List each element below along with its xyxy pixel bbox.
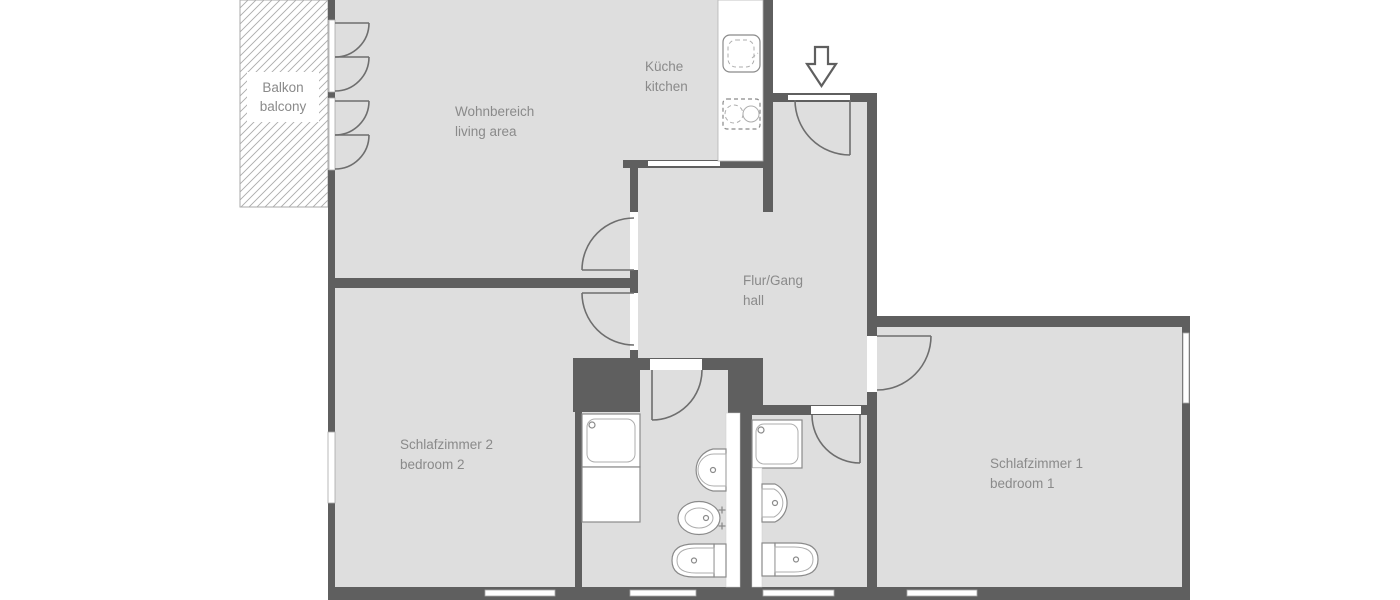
wall-bottom <box>328 587 1190 600</box>
hall-floor-top <box>773 100 867 168</box>
room-label-living: Wohnbereich living area <box>455 102 534 142</box>
room-name-en: kitchen <box>645 77 688 97</box>
balcony-door-opening-1 <box>329 20 335 92</box>
floor-plan: Balkon balcony Wohnbereich living area K… <box>0 0 1400 600</box>
room-name-de: Wohnbereich <box>455 102 534 122</box>
shower-icon <box>752 420 802 468</box>
wall-living-bedroom2 <box>328 278 638 288</box>
bedroom1-window-right <box>1183 333 1189 403</box>
room-name-de: Flur/Gang <box>743 271 803 291</box>
room-name-en: living area <box>455 122 534 142</box>
bedroom2-door-opening <box>630 293 638 350</box>
floor-plan-drawing <box>0 0 1400 600</box>
bathroom1-door-opening <box>650 359 702 370</box>
shower-icon <box>582 414 640 467</box>
bathroom1-window-bottom <box>630 590 696 596</box>
room-label-kitchen: Küche kitchen <box>645 57 688 97</box>
room-name-en: hall <box>743 291 803 311</box>
room-name-de: Schlafzimmer 1 <box>990 454 1083 474</box>
toilet-icon <box>672 544 726 577</box>
entrance-threshold <box>788 95 850 100</box>
toilet-icon <box>762 543 818 576</box>
kitchen-sink-icon <box>723 35 760 72</box>
room-label-bedroom1: Schlafzimmer 1 bedroom 1 <box>990 454 1083 494</box>
room-name-en: bedroom 1 <box>990 474 1083 494</box>
room-label-balcony: Balkon balcony <box>247 72 319 122</box>
hall-floor-main <box>638 168 867 358</box>
wall-bathroom-divider <box>740 412 752 600</box>
plumbing-wall <box>726 413 740 587</box>
room-label-bedroom2: Schlafzimmer 2 bedroom 2 <box>400 435 493 475</box>
plumbing-wall <box>752 468 762 587</box>
room-name-de: Küche <box>645 57 688 77</box>
kitchen-fixtures <box>718 0 763 161</box>
kitchen-hall-hatch <box>648 161 720 166</box>
living-door-opening <box>630 212 638 270</box>
stove-icon <box>723 99 760 129</box>
bedroom2-window-bottom <box>485 590 555 596</box>
bathroom1-floor-entry <box>640 370 740 412</box>
bathtub-tray <box>582 467 640 522</box>
room-name-de: Schlafzimmer 2 <box>400 435 493 455</box>
bedroom1-window-bottom <box>907 590 977 596</box>
bedroom2-window-left <box>328 432 335 503</box>
balcony-door-opening-2 <box>329 98 335 170</box>
hall-floor-step <box>763 358 867 405</box>
bathroom2-door-opening <box>811 406 861 414</box>
room-label-hall: Flur/Gang hall <box>743 271 803 311</box>
room-name-de: Balkon <box>262 78 303 97</box>
room-name-en: bedroom 2 <box>400 455 493 475</box>
entrance-arrow-icon <box>807 47 836 86</box>
kitchen-counter <box>718 0 763 161</box>
room-name-en: balcony <box>260 97 307 116</box>
bedroom1-door-opening <box>868 336 876 392</box>
wall-bedroom1-top <box>867 316 1190 327</box>
bathroom2-window-bottom <box>763 590 834 596</box>
wall-kitchen-right <box>763 0 773 212</box>
